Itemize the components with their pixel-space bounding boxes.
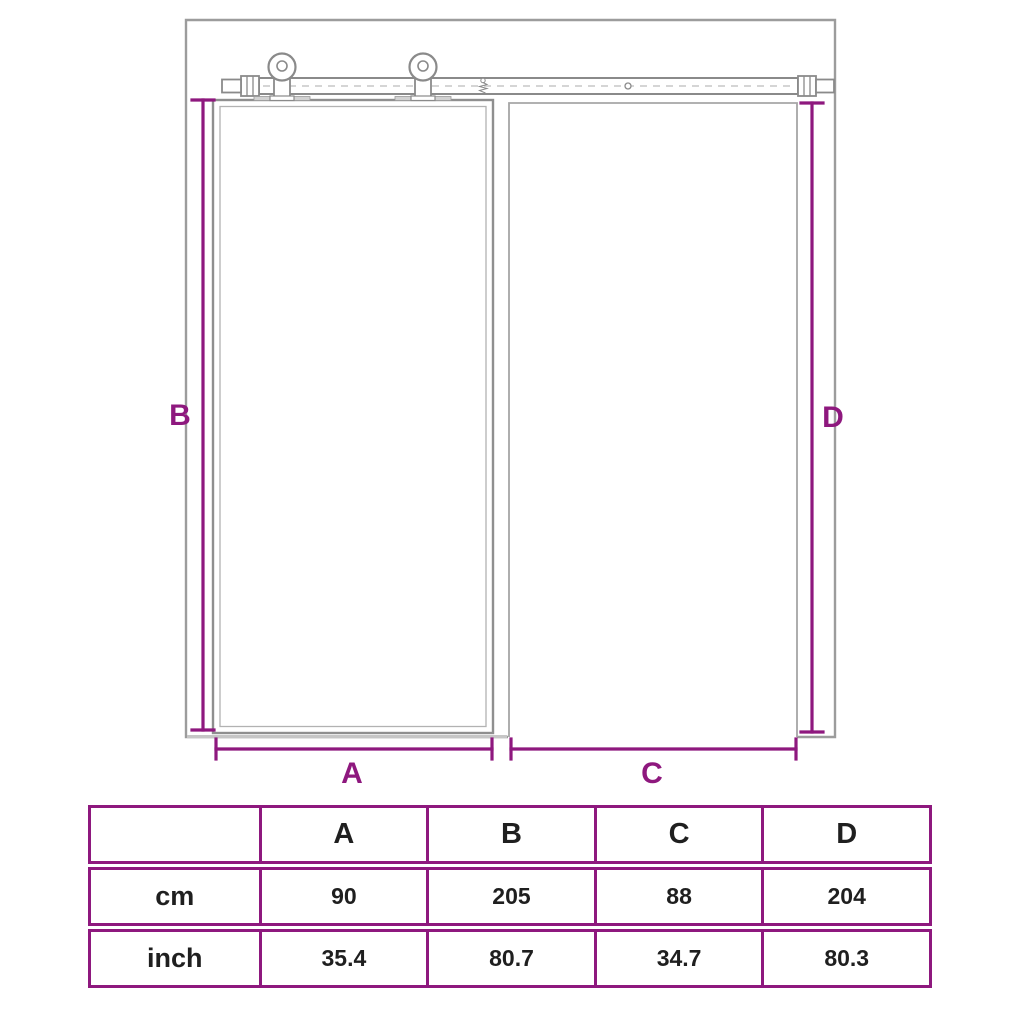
- floor-shadow: [187, 735, 507, 738]
- cm-value-c: 88: [594, 870, 762, 923]
- sliding-door-diagram: A B C D: [0, 0, 1024, 800]
- rail: [222, 76, 834, 96]
- dimension-line-b: [192, 100, 214, 730]
- rail-end-cap-left: [222, 80, 241, 93]
- header-cell-empty: [91, 808, 259, 861]
- cm-value-b: 205: [426, 870, 594, 923]
- dim-label-d: D: [822, 401, 844, 434]
- header-cell-c: C: [594, 808, 762, 861]
- cm-value-d: 204: [761, 870, 929, 923]
- inch-value-b: 80.7: [426, 932, 594, 985]
- spacer-right-icon: [294, 97, 310, 101]
- roller-axle-icon: [277, 61, 287, 71]
- spacer-left-icon: [254, 97, 270, 101]
- inch-value-a: 35.4: [259, 932, 427, 985]
- roller-axle-icon: [418, 61, 428, 71]
- rail-hole: [625, 83, 631, 89]
- dimension-line-a: [216, 739, 492, 759]
- rail-collar-right: [798, 76, 816, 96]
- dimension-table: A B C D cm 90 205 88 204 inch 35.4 80.7 …: [88, 805, 932, 991]
- dim-label-b: B: [169, 399, 191, 432]
- row-label-inch: inch: [91, 932, 259, 985]
- rail-end-cap-right: [816, 80, 834, 93]
- cm-value-a: 90: [259, 870, 427, 923]
- header-cell-b: B: [426, 808, 594, 861]
- spacer-left-icon: [395, 97, 411, 101]
- row-label-cm: cm: [91, 870, 259, 923]
- table-row-inch: inch 35.4 80.7 34.7 80.3: [88, 929, 932, 988]
- inch-value-c: 34.7: [594, 932, 762, 985]
- spacer-right-icon: [435, 97, 451, 101]
- rail-collar-left: [241, 76, 259, 96]
- strap-foot: [270, 96, 294, 101]
- product-dimension-page: A B C D A B C D cm 90 205 88 204 inch 35…: [0, 0, 1024, 1024]
- table-header-row: A B C D: [88, 805, 932, 864]
- inch-value-d: 80.3: [761, 932, 929, 985]
- header-cell-d: D: [761, 808, 929, 861]
- dim-label-a: A: [341, 757, 363, 790]
- strap-foot: [411, 96, 435, 101]
- dimension-line-c: [511, 739, 796, 759]
- table-row-cm: cm 90 205 88 204: [88, 867, 932, 926]
- dimension-line-d: [801, 103, 823, 732]
- header-cell-a: A: [259, 808, 427, 861]
- dim-label-c: C: [641, 757, 663, 790]
- door-panel: [213, 100, 493, 733]
- doorway-opening: [509, 103, 797, 737]
